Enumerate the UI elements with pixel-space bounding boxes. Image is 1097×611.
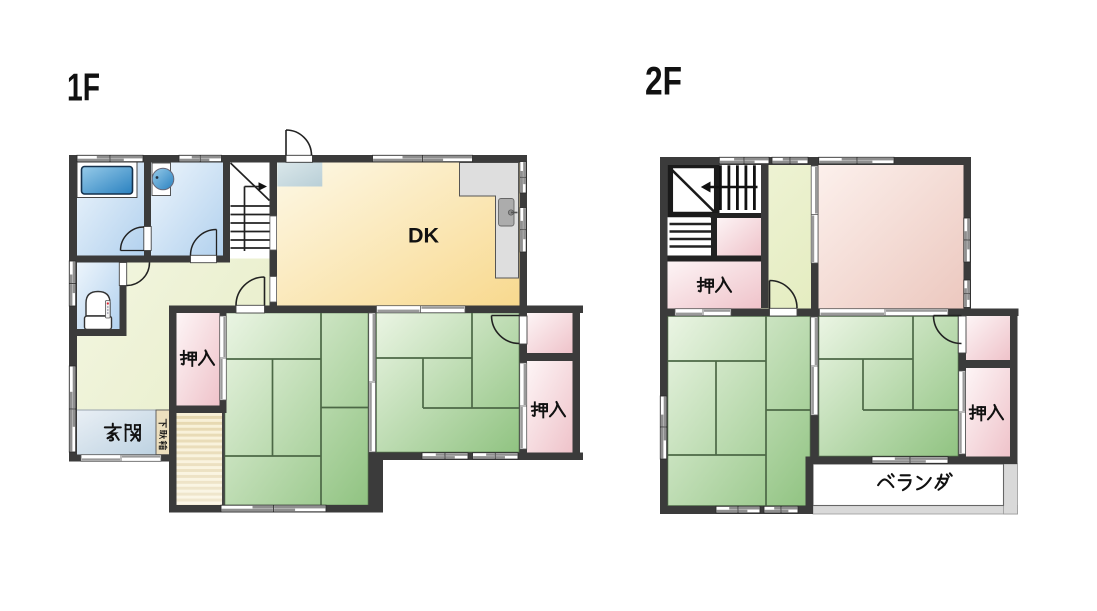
svg-text:1F: 1F	[67, 67, 100, 110]
svg-text:2F: 2F	[645, 60, 682, 104]
svg-text:DK: DK	[408, 224, 440, 248]
